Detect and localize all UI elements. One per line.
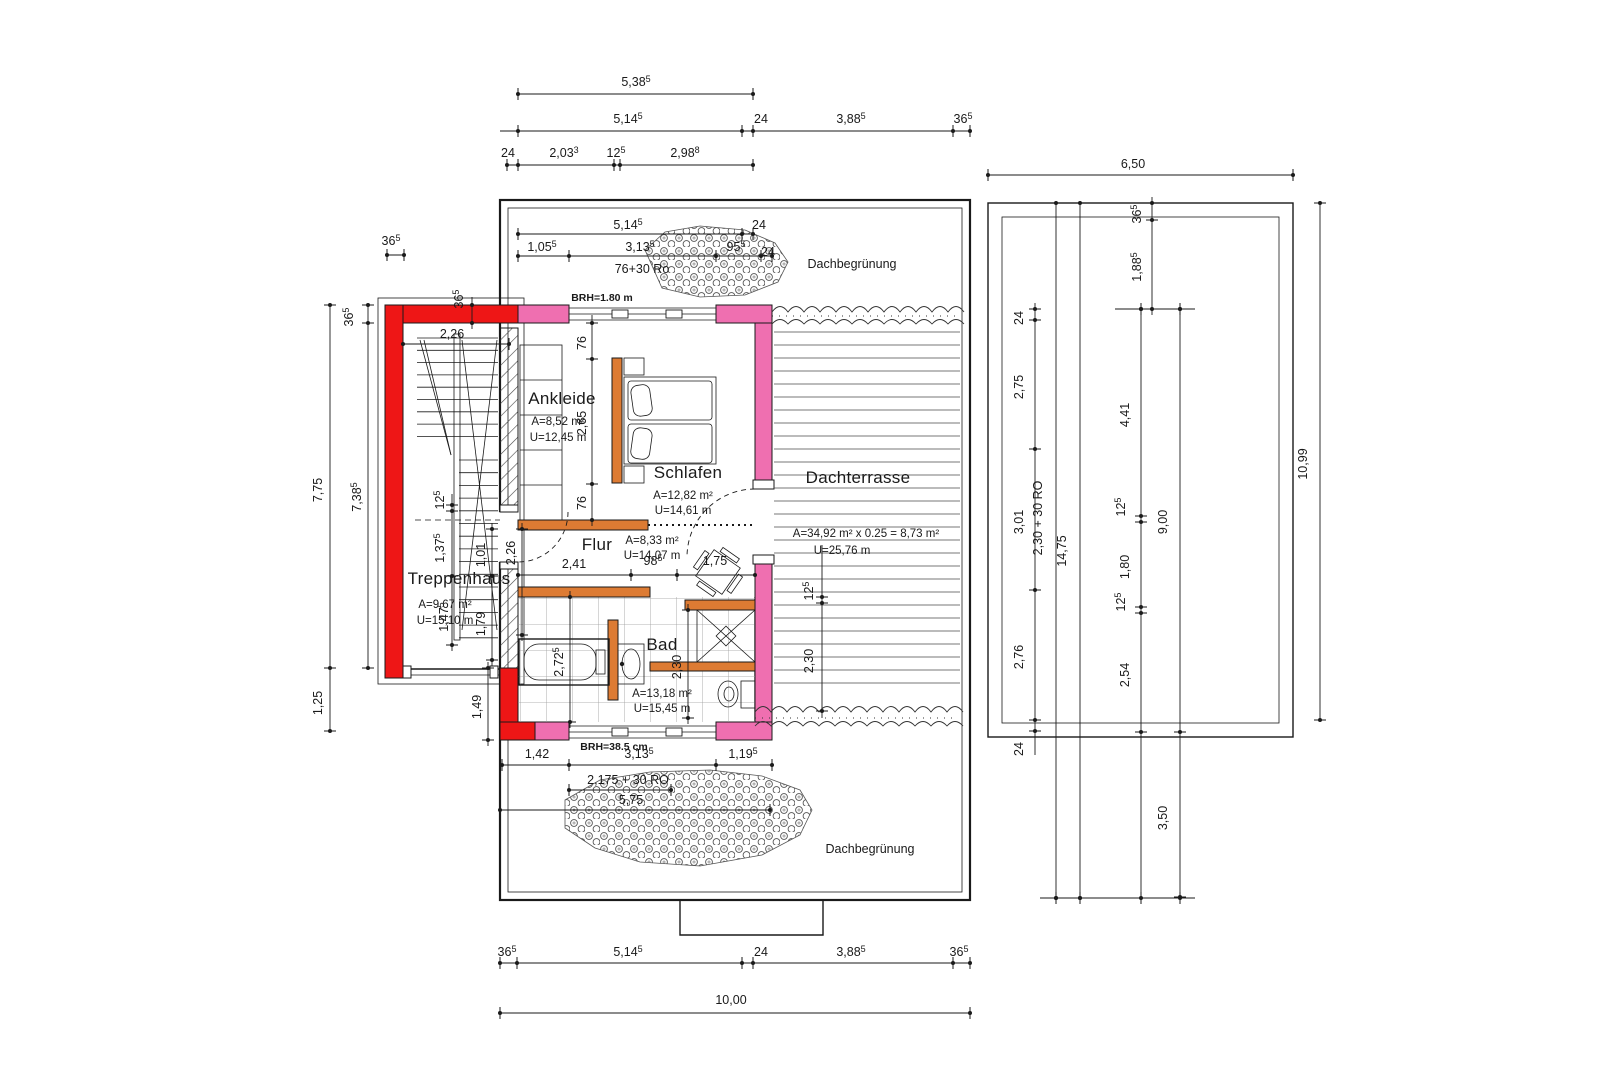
dimension-label: 7,385 <box>349 482 364 511</box>
room-area: A=13,18 m² <box>632 688 692 700</box>
dimension-label: 2,30 <box>670 655 684 679</box>
annotation: Dachbegrünung <box>826 842 915 856</box>
floor-plan-drawing: TreppenhausA=9,67 m²U=15,10 mAnkleideA=8… <box>0 0 1620 1080</box>
stair-pitch-line <box>424 340 451 455</box>
room-name: Schlafen <box>654 463 723 482</box>
dimension-label: 24 <box>754 112 768 126</box>
dimension-label: 1,01 <box>474 543 488 567</box>
room-name: Dachterrasse <box>806 468 911 487</box>
dimension-label: 365 <box>341 308 356 327</box>
dimension-label: 985 <box>644 553 663 568</box>
dimension-label: 5,145 <box>613 111 642 126</box>
dimension-label: 125 <box>432 491 447 510</box>
stairs <box>415 334 500 640</box>
dimension-label: 2,26 <box>504 541 518 565</box>
room-name: Treppenhaus <box>408 569 511 588</box>
room-name: Flur <box>582 535 613 554</box>
room-name: Bad <box>646 635 677 654</box>
dimension-label: 3,885 <box>836 944 865 959</box>
dimension-label: 2,30 <box>802 649 816 673</box>
dimension-label: 125 <box>801 582 816 601</box>
dimension-label: 2,41 <box>562 557 586 571</box>
dimension-label: 1,375 <box>432 533 447 562</box>
door-jamb <box>500 505 518 512</box>
dimension-label: 9,00 <box>1156 510 1170 534</box>
orange-wall-flur <box>518 520 648 530</box>
dimension-label: 10,99 <box>1296 448 1310 479</box>
mattress <box>628 381 712 420</box>
door-jamb <box>753 555 774 564</box>
red-wall-segment <box>500 722 535 740</box>
dimension-label: 24 <box>1012 742 1026 756</box>
bed-frame <box>624 377 716 464</box>
terrace-decking <box>774 332 960 683</box>
dimension-label: 6,50 <box>1121 157 1145 171</box>
room-perimeter: U=25,76 m <box>814 545 871 557</box>
pink-wall-segment <box>535 722 569 740</box>
dimension-label: 3,50 <box>1156 806 1170 830</box>
right-roof-outer <box>988 203 1293 737</box>
room-area: A=8,33 m² <box>625 535 679 547</box>
dimension-label: 2,033 <box>549 145 578 160</box>
dimension-label: 24 <box>752 218 766 232</box>
dimension-label: 5,145 <box>613 217 642 232</box>
annotation: 2,30 + 30 RO <box>1031 480 1045 555</box>
annotation: Dachbegrünung <box>808 257 897 271</box>
dimension-label: 125 <box>1113 593 1128 612</box>
dimension-label: 24 <box>1012 311 1026 325</box>
dimension-label: 1,055 <box>527 239 556 254</box>
door-jamb <box>403 666 411 678</box>
dimension-label: 2,75 <box>1012 375 1026 399</box>
pink-wall-corner <box>716 722 772 740</box>
pink-wall-bad <box>755 557 772 722</box>
pink-wall-schlafen <box>755 323 772 487</box>
dimension-label: 5,75 <box>619 793 643 807</box>
pink-wall-corner <box>716 305 772 323</box>
dimension-label: 76 <box>575 336 589 350</box>
door-jamb <box>753 480 774 489</box>
dimension-label: 1,195 <box>728 746 757 761</box>
stair-pitch-line <box>420 340 451 455</box>
floor-plan-canvas: TreppenhausA=9,67 m²U=15,10 mAnkleideA=8… <box>0 0 1620 1080</box>
dimension-label: 5,385 <box>621 74 650 89</box>
dimension-label: 76 <box>575 496 589 510</box>
existing-wall-hatched <box>500 328 518 668</box>
dimension-label: 2,76 <box>1012 645 1026 669</box>
dimension-label: 3,01 <box>1012 510 1026 534</box>
dimension-label: 365 <box>950 944 969 959</box>
dimension-label: 365 <box>498 944 517 959</box>
nightstand <box>624 466 644 483</box>
pink-wall-segment <box>518 305 569 323</box>
bottom-bump-out <box>680 901 823 935</box>
dimension-label: 7,75 <box>311 478 325 502</box>
room-name: Ankleide <box>528 389 596 408</box>
nightstand <box>624 358 644 375</box>
orange-wall-shower-bottom <box>650 662 755 671</box>
room-perimeter: U=15,45 m <box>634 703 691 715</box>
dimension-label: 365 <box>451 290 466 309</box>
dimension-label: 1,79 <box>474 612 488 636</box>
window-mullion <box>666 728 682 736</box>
annotation: 14,75 <box>1055 535 1069 566</box>
dimension-label: 4,41 <box>1118 403 1132 427</box>
annotation: BRH=1.80 m <box>571 292 633 304</box>
window-mullion <box>612 310 628 318</box>
dimension-label: 24 <box>754 945 768 959</box>
annotation: 76+30 Ro <box>615 262 670 276</box>
room-area: A=12,82 m² <box>653 490 713 502</box>
dimension-label: 125 <box>607 145 626 160</box>
dimension-label: 3,885 <box>836 111 865 126</box>
annotation: 2,175 + 30 RO <box>587 773 669 787</box>
mattress <box>628 424 712 463</box>
dimension-label: 1,885 <box>1129 252 1144 281</box>
room-perimeter: U=14,61 m <box>655 505 712 517</box>
dimension-label: 365 <box>382 233 401 248</box>
dimension-label: 1,80 <box>1118 555 1132 579</box>
dimension-label: 365 <box>1129 205 1144 224</box>
north-wall <box>518 305 772 323</box>
pillow <box>630 427 653 460</box>
orange-wall-bad-top <box>518 587 650 597</box>
dimension-label: 2,26 <box>440 327 464 341</box>
orange-wall-shower-top <box>685 600 755 610</box>
orange-wall-bed-head <box>612 358 622 483</box>
treppenhaus-structure <box>378 298 524 740</box>
dimension-label: 2,65 <box>575 411 589 435</box>
dimension-label: 24 <box>501 146 515 160</box>
pillow <box>630 384 653 417</box>
right-roof-inner <box>1002 217 1279 723</box>
south-wall <box>500 722 772 740</box>
dimension-label: 2,988 <box>670 145 699 160</box>
vegetation-bands <box>755 307 964 727</box>
dimension-label: 3,135 <box>624 746 653 761</box>
window-mullion <box>612 728 628 736</box>
dimension-label: 2,54 <box>1118 663 1132 687</box>
dimension-label: 1,42 <box>525 747 549 761</box>
red-wall-left <box>385 305 403 678</box>
dimension-label: 1,25 <box>311 691 325 715</box>
chair <box>686 540 750 604</box>
dimension-label: 125 <box>1113 498 1128 517</box>
labels-and-dimensions: TreppenhausA=9,67 m²U=15,10 mAnkleideA=8… <box>311 74 1310 1007</box>
window-mullion <box>666 310 682 318</box>
dimension-label: 24 <box>761 245 775 259</box>
stair-stringer <box>454 334 460 640</box>
dimension-label: 1,49 <box>470 695 484 719</box>
roof-terrace-right-outline <box>988 203 1293 737</box>
dimension-label: 5,145 <box>613 944 642 959</box>
dimension-label: 365 <box>954 111 973 126</box>
room-area: A=34,92 m² x 0.25 = 8,73 m² <box>793 528 940 540</box>
dimension-label: 10,00 <box>715 993 746 1007</box>
dimension-label: 1,75 <box>703 554 727 568</box>
